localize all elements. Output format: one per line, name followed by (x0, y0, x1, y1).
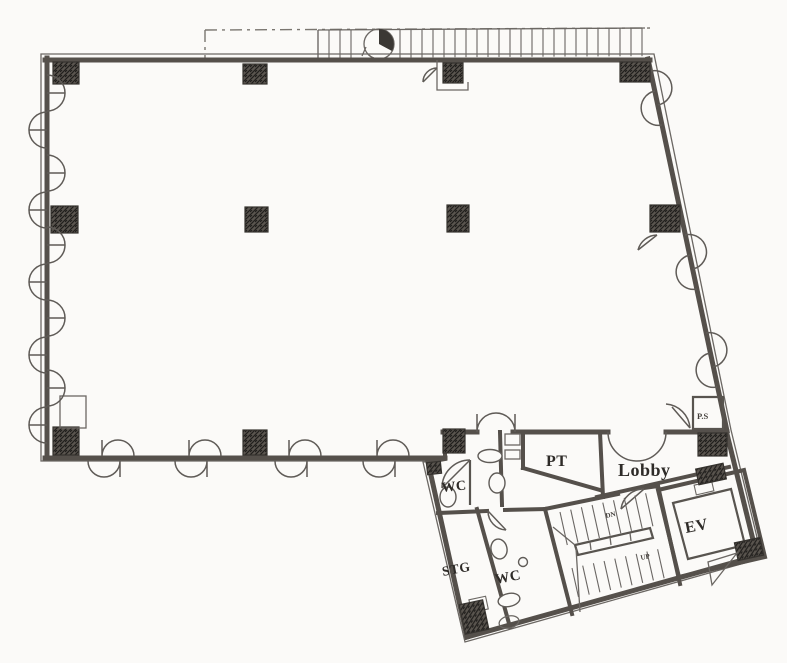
column (243, 430, 267, 455)
column-freestanding (447, 205, 469, 232)
stair-tread (635, 496, 642, 529)
labels: PT Lobby WC STG WC EV P.S DN UP (441, 411, 710, 588)
stair-tread (581, 507, 588, 540)
column-freestanding (245, 207, 268, 232)
stair-marker-arrow (362, 47, 374, 58)
column (443, 429, 465, 453)
wall-band-top (438, 509, 545, 513)
stair-tread (560, 512, 567, 545)
room-label-lobby: Lobby (618, 460, 671, 480)
floor-plan-page: PT Lobby WC STG WC EV P.S DN UP (0, 0, 787, 663)
right-column-door (638, 235, 657, 250)
sink-fixture (519, 558, 528, 567)
window-door-arcs (29, 60, 727, 477)
sink-fixture (478, 450, 502, 463)
stair-marker-wedge (379, 29, 394, 51)
stair-tread (615, 559, 622, 588)
main-room-double-door (477, 413, 515, 432)
wall-vestibule-right (500, 432, 502, 505)
column (696, 463, 727, 484)
wall-core-right (726, 430, 757, 556)
stair-mark-dn: DN (605, 510, 617, 520)
column (243, 64, 267, 84)
shaft-box-2 (505, 450, 520, 459)
wall-lobby-left (600, 432, 603, 497)
room-label-stg: STG (441, 559, 472, 579)
room-label-wc-upper: WC (441, 478, 468, 496)
column (53, 427, 79, 455)
wall-stairhall-left (545, 509, 572, 614)
column (698, 433, 727, 456)
column (443, 63, 463, 83)
stair-tread (646, 493, 653, 526)
outer-walls (45, 58, 757, 637)
column (650, 205, 680, 232)
stair-tread (571, 510, 578, 543)
column (426, 461, 441, 474)
room-label-ps: P.S (697, 411, 709, 421)
stair-tread (658, 549, 665, 578)
lobby-double-door (608, 432, 666, 461)
corner-closet-outline (60, 396, 86, 428)
stair-tread (593, 563, 600, 592)
stair-tread (583, 566, 590, 595)
wall-pt-bottom (523, 468, 600, 490)
wall-right-slanted (648, 59, 727, 431)
column (53, 62, 79, 84)
building-outer-contour (41, 54, 762, 642)
ps-door (666, 404, 690, 428)
stair-mark-up: UP (640, 552, 651, 562)
room-label-pt: PT (546, 453, 567, 470)
room-label-ev: EV (684, 516, 710, 537)
toilet-fixture (489, 473, 505, 493)
floor-plan-canvas: PT Lobby WC STG WC EV P.S DN UP (0, 0, 787, 663)
room-label-wc-lower: WC (494, 567, 523, 588)
column (620, 62, 650, 82)
wc-lower-door (488, 511, 506, 530)
stair-tread (626, 556, 633, 585)
stair-tread (604, 561, 611, 590)
columns (51, 62, 764, 634)
stair-tread (592, 505, 599, 538)
top-stair-treads-right (400, 28, 642, 57)
shaft-box-1 (505, 434, 520, 445)
